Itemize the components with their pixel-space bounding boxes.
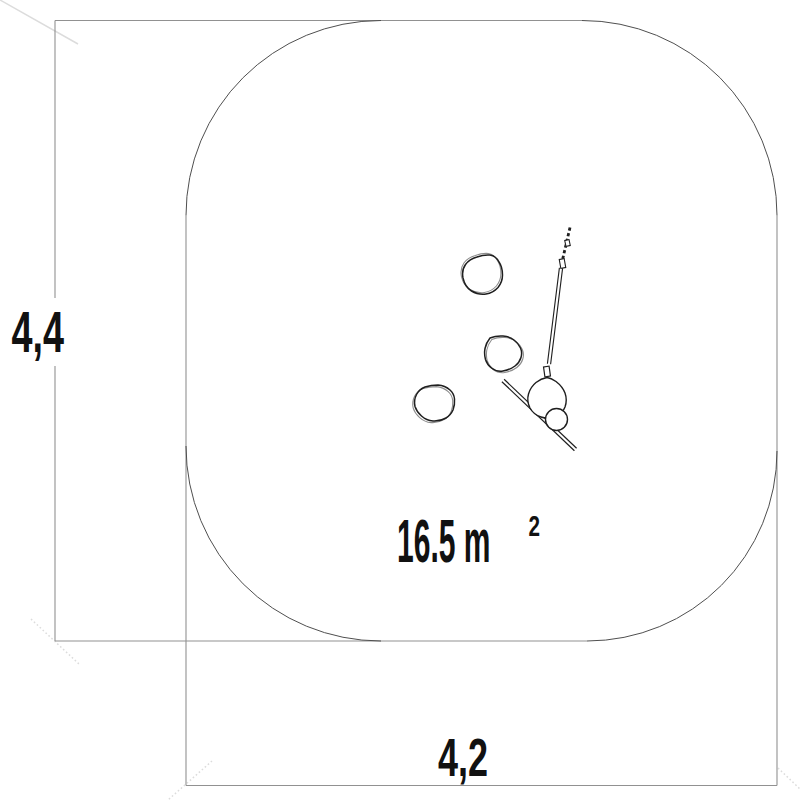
zone-corner-arc-bottom-right [587,451,777,641]
rope-tube-edge-left [547,268,559,364]
faint-diagonal-top-left [0,0,78,44]
safety-zone-outline [186,21,777,786]
boulder-3-outline [415,385,455,421]
rope-assembly [544,228,571,377]
area-label: 16.5 m [397,507,491,575]
chain-bead [565,240,571,247]
plan-drawing: 4,4 4,2 16.5 m 2 [0,0,800,800]
boulder-1 [461,253,503,294]
rope-tube-edge-right [551,268,563,364]
dimension-label-width: 4,2 [438,727,488,787]
small-stone [546,409,568,431]
shackle-top [559,259,565,269]
boulder-2 [485,336,524,373]
boulder-3 [413,385,455,423]
zone-corner-arc-bottom-left [186,446,381,641]
zone-corner-arc-top-right [582,21,777,216]
faint-diagonal-bottom-right [778,768,800,789]
shackle-bottom [544,366,551,377]
faint-diagonal-bottom-left [168,761,212,800]
zone-corner-arc-top-left [186,21,381,216]
boundary-rectangle [55,21,587,642]
area-superscript: 2 [529,509,541,542]
boulder-1-outline [463,255,503,294]
drawing-canvas: 4,4 4,2 16.5 m 2 [0,0,800,800]
dimension-label-height: 4,4 [12,300,65,364]
